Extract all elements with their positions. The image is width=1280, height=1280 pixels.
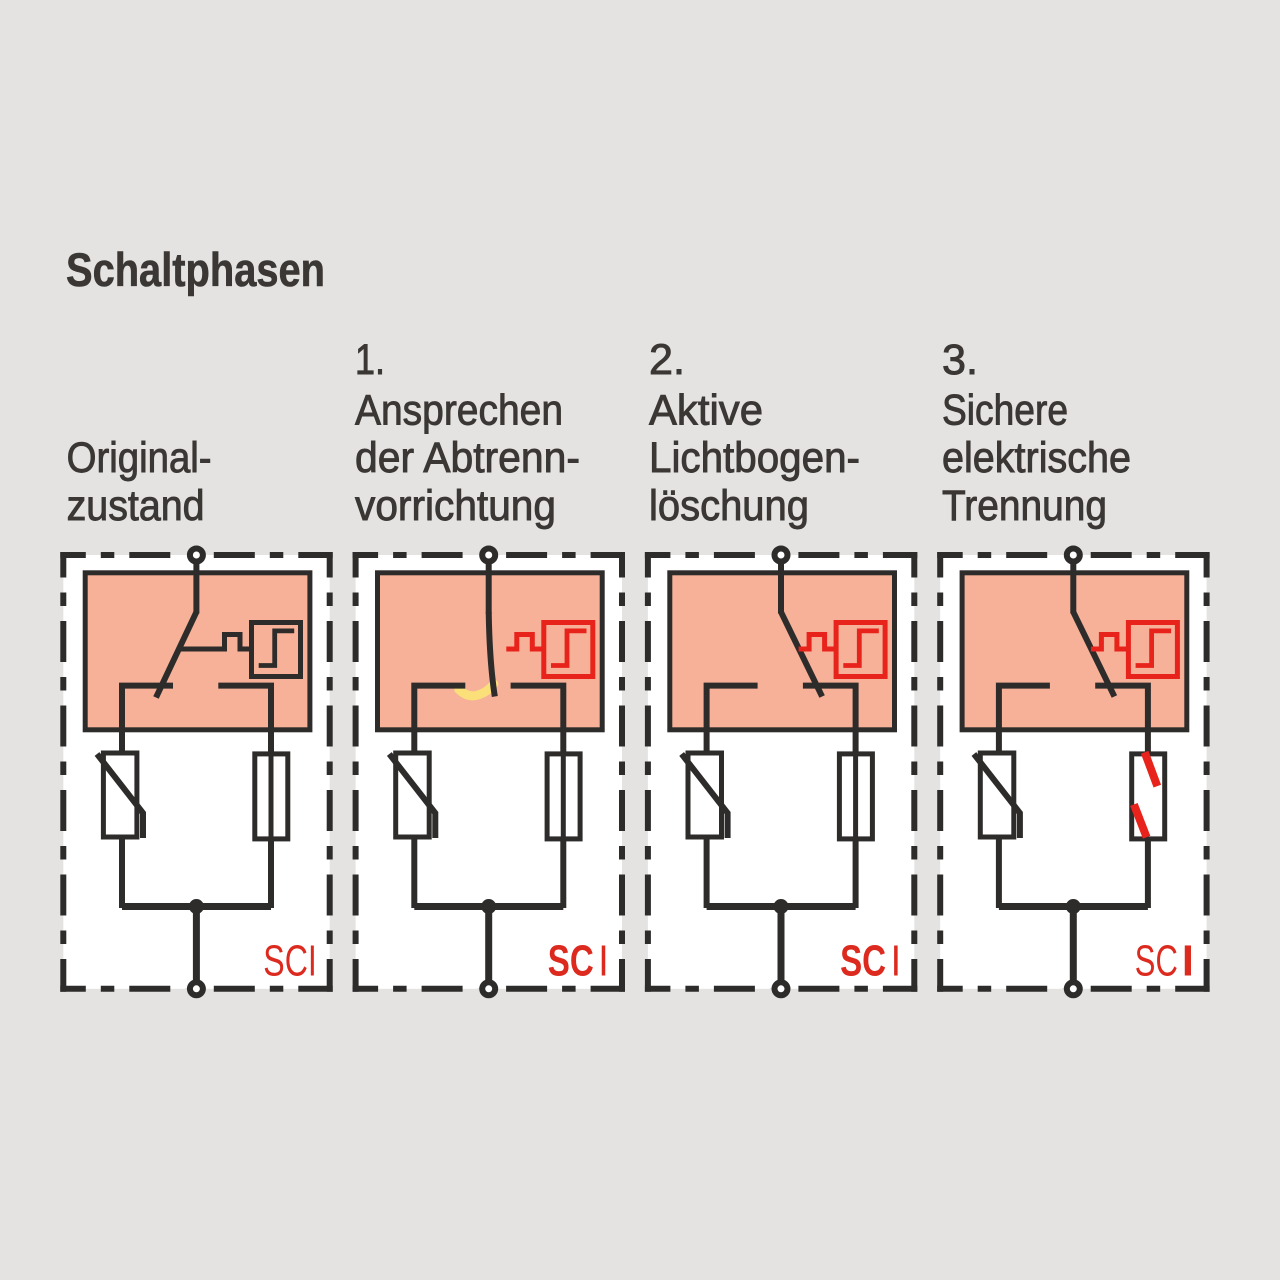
svg-text:SC: SC [1135,937,1178,986]
svg-text:elektrische: elektrische [942,434,1131,482]
svg-text:I: I [598,937,609,986]
svg-text:I: I [1182,937,1194,986]
svg-text:SCI: SCI [263,937,317,986]
svg-text:der Abtrenn-: der Abtrenn- [355,434,580,482]
svg-text:Schaltphasen: Schaltphasen [66,243,325,296]
svg-text:2.: 2. [649,336,685,384]
svg-text:Sichere: Sichere [942,386,1068,434]
svg-text:zustand: zustand [67,482,205,530]
svg-text:Lichtbogen-: Lichtbogen- [649,434,860,482]
svg-text:1.: 1. [355,336,385,384]
svg-text:Trennung: Trennung [942,482,1107,530]
svg-text:3.: 3. [942,336,978,384]
svg-text:I: I [891,937,902,986]
svg-text:Aktive: Aktive [649,386,763,434]
svg-text:Original-: Original- [67,434,212,482]
svg-text:löschung: löschung [649,482,809,530]
svg-text:SC: SC [548,937,594,986]
svg-text:Ansprechen: Ansprechen [355,386,563,434]
svg-text:vorrichtung: vorrichtung [355,482,556,530]
svg-text:SC: SC [840,937,886,986]
